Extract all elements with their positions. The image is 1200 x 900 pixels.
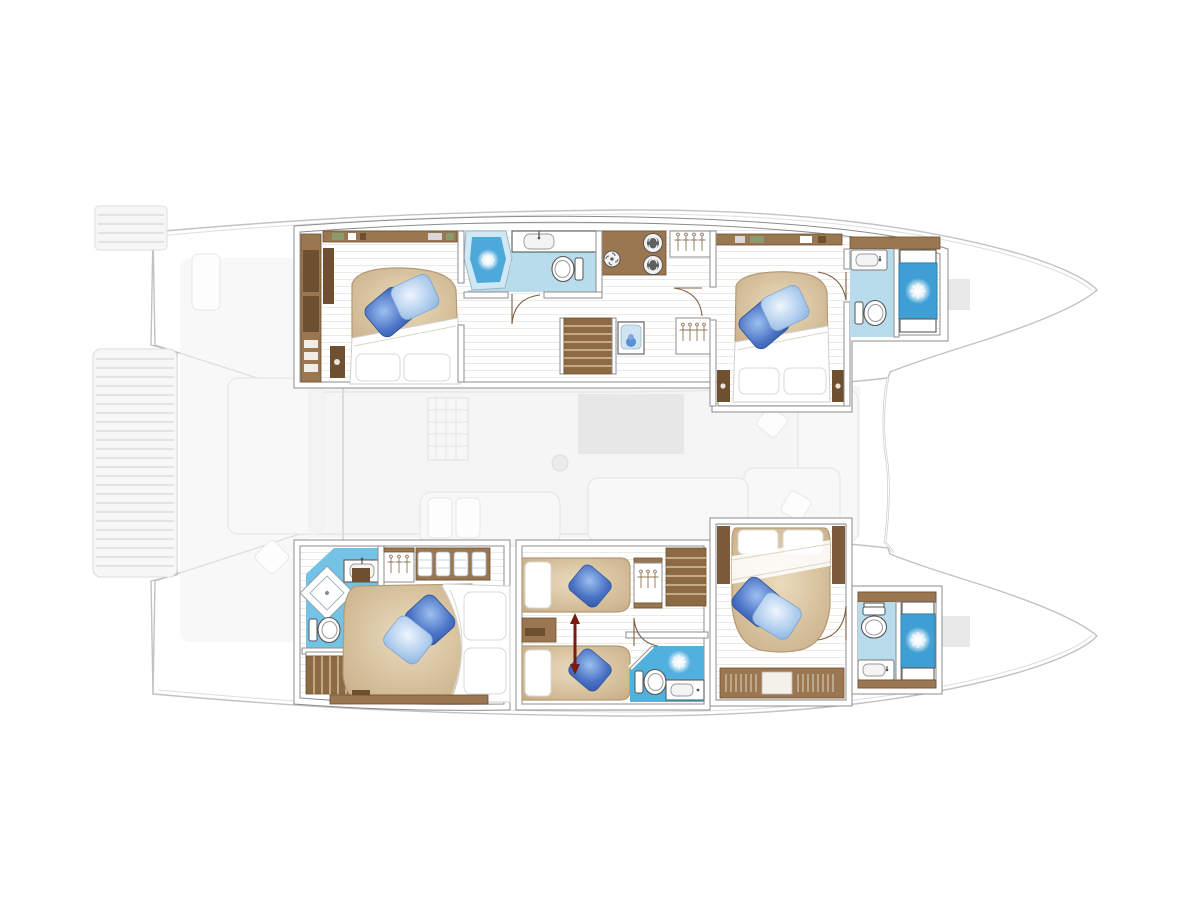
washbasin-counter bbox=[666, 680, 704, 700]
port-hull-accommodation bbox=[294, 216, 948, 412]
starboard-hull-accommodation bbox=[294, 518, 942, 710]
bathroom-forward-port bbox=[850, 237, 940, 337]
corner-shower bbox=[464, 231, 512, 290]
white-pillow bbox=[525, 650, 551, 696]
catamaran-floor-plan bbox=[0, 0, 1200, 900]
book-shelf bbox=[330, 695, 488, 704]
nightstand bbox=[717, 370, 730, 402]
galley-counter-ghost bbox=[578, 394, 684, 454]
nightstand bbox=[352, 568, 370, 582]
toilet-icon bbox=[552, 257, 583, 282]
bathroom-forward-starboard bbox=[852, 586, 942, 694]
white-pillow bbox=[464, 592, 506, 640]
white-pillow bbox=[739, 368, 779, 394]
washbasin-counter bbox=[512, 231, 598, 252]
fan-icon bbox=[604, 251, 620, 267]
galley-hatch-ghost bbox=[428, 398, 468, 460]
white-pillow bbox=[464, 648, 506, 694]
shower-cubicle bbox=[901, 602, 935, 680]
stairs-icon bbox=[666, 548, 706, 606]
toilet-icon bbox=[309, 618, 340, 643]
swim-platform bbox=[93, 349, 177, 577]
white-pillow bbox=[404, 354, 450, 381]
shower-sparkle-icon bbox=[477, 249, 499, 271]
sink-icon bbox=[851, 250, 887, 270]
shower-cubicle bbox=[899, 250, 937, 332]
shower-sparkle-icon bbox=[905, 627, 931, 653]
catamaran-layout-page: Top-down architectural plan of a sailing… bbox=[0, 0, 1200, 900]
mast-foot-ghost bbox=[552, 455, 568, 471]
owner-cabin-aft-starboard bbox=[294, 540, 510, 710]
book-shelf bbox=[720, 668, 844, 698]
linen-icon bbox=[454, 552, 468, 576]
side-panel bbox=[832, 526, 845, 584]
cabinet-strip bbox=[850, 237, 940, 249]
bow-locker-ghost-starboard bbox=[942, 616, 970, 647]
shower-sparkle-icon bbox=[667, 650, 690, 673]
white-pillow bbox=[525, 562, 551, 608]
island-double-bed bbox=[350, 268, 460, 384]
hanging-locker bbox=[634, 558, 662, 608]
washer-icon bbox=[644, 234, 663, 253]
island-double-bed bbox=[733, 272, 830, 402]
linen-icon bbox=[472, 552, 486, 576]
daybed-ghost bbox=[420, 492, 560, 546]
white-pillow bbox=[356, 354, 400, 381]
shower-sparkle-icon bbox=[905, 278, 931, 304]
toilet-icon bbox=[635, 670, 666, 695]
bench-seat bbox=[323, 248, 334, 304]
cabin-forward-starboard bbox=[710, 518, 852, 706]
single-bed bbox=[522, 558, 630, 612]
hanging-locker bbox=[676, 318, 710, 354]
cabinet-strip bbox=[858, 680, 936, 688]
hanging-locker bbox=[670, 231, 710, 257]
washer-icon bbox=[644, 256, 663, 275]
stairs-icon bbox=[560, 318, 616, 374]
toilet-icon bbox=[862, 607, 887, 638]
wardrobe-shelf-items bbox=[304, 340, 318, 372]
bridge-deck-edge bbox=[884, 378, 893, 552]
island-double-bed bbox=[343, 584, 510, 702]
linen-shelves bbox=[416, 548, 490, 580]
twin-cabin-starboard bbox=[516, 540, 710, 710]
linen-icon bbox=[418, 552, 432, 576]
side-panel bbox=[717, 526, 730, 584]
linen-icon bbox=[436, 552, 450, 576]
cabinet-strip bbox=[858, 592, 936, 602]
island-double-bed bbox=[729, 528, 830, 652]
vanity-unit bbox=[618, 322, 644, 354]
transom-steps bbox=[95, 206, 167, 250]
cockpit-console-ghost bbox=[192, 254, 220, 310]
nightstand bbox=[522, 618, 556, 642]
nightstand bbox=[330, 346, 345, 378]
nightstand bbox=[832, 370, 845, 402]
hanging-locker bbox=[384, 548, 414, 582]
sink-icon bbox=[858, 660, 894, 680]
toilet-icon bbox=[855, 301, 886, 326]
white-pillow bbox=[784, 368, 826, 394]
